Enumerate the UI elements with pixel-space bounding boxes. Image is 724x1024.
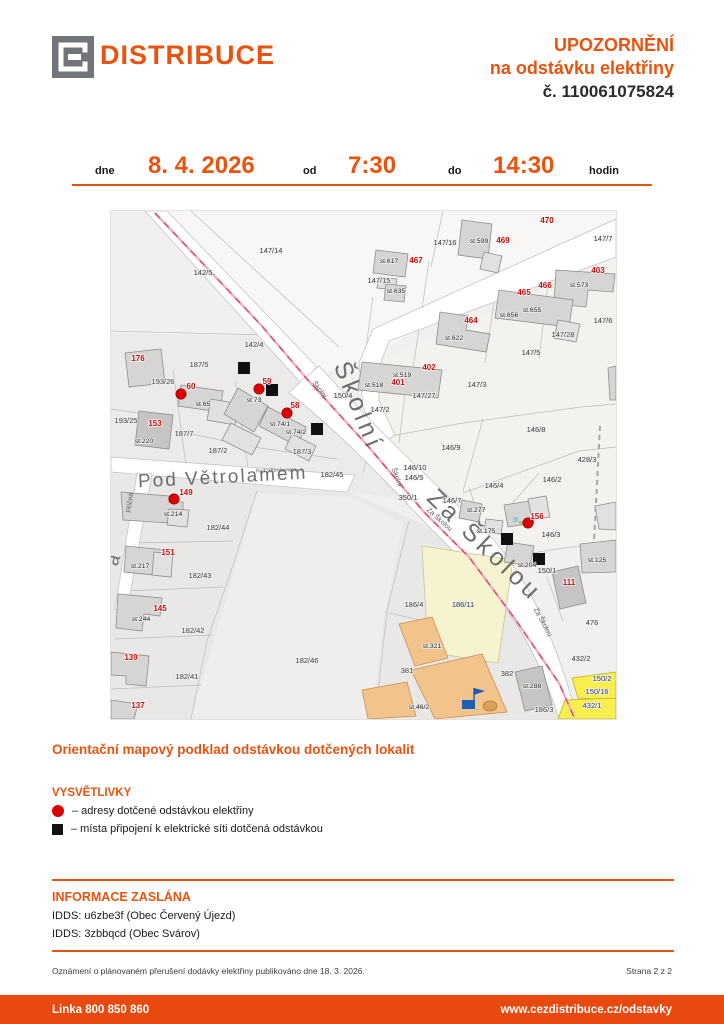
outage-map: ŠkolníZa ŠkolouPod VětrolamemáŠkolníŠkol… <box>110 210 617 720</box>
map-label: 182/42 <box>182 626 205 635</box>
map-label: 193/25 <box>115 416 138 425</box>
map-label: 146/9 <box>442 443 461 452</box>
idds-line: IDDS: u6zbe3f (Obec Červený Újezd) <box>52 910 235 922</box>
map-label: 182/43 <box>189 571 212 580</box>
map-label: st.74/1 <box>270 421 291 428</box>
divider <box>72 184 652 186</box>
map-label: 381 <box>401 666 414 675</box>
divider <box>52 950 674 952</box>
map-label: 187/7 <box>175 429 194 438</box>
map-label: 186/4 <box>405 600 424 609</box>
map-label: 147/27 <box>413 391 436 400</box>
map-label: st.635 <box>387 288 406 295</box>
affected-address-marker <box>176 389 186 399</box>
map-label: 186/11 <box>452 600 474 609</box>
map-label: 187/3 <box>293 447 312 456</box>
map-label: 403 <box>591 266 605 275</box>
cez-logo-mark <box>52 36 94 78</box>
legend-item-text: – adresy dotčené odstávkou elektřiny <box>72 805 254 817</box>
map-label: 465 <box>517 288 531 297</box>
map-label: 428/3 <box>578 455 597 464</box>
map-label: 145 <box>153 604 167 613</box>
legend-item-addresses: – adresy dotčené odstávkou elektřiny <box>52 805 254 817</box>
map-label: 146/4 <box>485 481 504 490</box>
from-time: 7:30 <box>348 152 396 180</box>
map-label: 146/8 <box>527 425 546 434</box>
map-label: st.65 <box>196 401 211 408</box>
red-dot-icon <box>52 805 64 817</box>
map-label: 182/46 <box>296 656 319 665</box>
brand-wordmark: DISTRIBUCE <box>100 40 275 71</box>
affected-address-marker <box>169 494 179 504</box>
idds-line: IDDS: 3zbbqcd (Obec Svárov) <box>52 928 200 940</box>
outage-map-svg: ŠkolníZa ŠkolouPod VětrolamemáŠkolníŠkol… <box>111 211 616 719</box>
map-label: st.321 <box>423 643 442 650</box>
legend-item-text: – místa připojení k elektrické síti dotč… <box>71 823 323 835</box>
map-label: 187/2 <box>209 446 228 455</box>
map-label: 466 <box>538 281 552 290</box>
map-label: 153 <box>148 419 162 428</box>
map-label: 147/5 <box>522 348 541 357</box>
map-label: 60 <box>187 382 196 391</box>
map-label: 470 <box>540 216 554 225</box>
map-label: 146/5 <box>405 473 424 482</box>
map-label: 142/4 <box>245 340 264 349</box>
unit-label: hodin <box>589 165 619 177</box>
map-label: 182/44 <box>207 523 230 532</box>
map-label: st.175 <box>477 528 496 535</box>
info-title: INFORMACE ZASLÁNA <box>52 890 191 904</box>
footer-bar: Linka 800 850 860 www.cezdistribuce.cz/o… <box>0 995 724 1024</box>
map-label: 147/7 <box>594 234 613 243</box>
map-label: 151 <box>161 548 175 557</box>
map-label: st.655 <box>523 307 542 314</box>
map-label: 146/3 <box>542 530 561 539</box>
map-label: 193/26 <box>152 377 175 386</box>
publication-note: Oznámení o plánovaném přerušení dodávky … <box>52 966 365 976</box>
page-number: Strana 2 z 2 <box>626 966 672 976</box>
map-label: 147/16 <box>434 238 457 247</box>
map-caption: Orientační mapový podklad odstávkou dotč… <box>52 742 414 757</box>
map-label: 147/15 <box>368 276 391 285</box>
map-label: st.617 <box>380 258 399 265</box>
date-label: dne <box>95 165 115 177</box>
map-label: st.214 <box>164 511 183 518</box>
map-label: st.518 <box>365 382 384 389</box>
map-label: 147/28 <box>552 330 575 339</box>
notice-title-line2: na odstávku elektřiny <box>490 57 674 80</box>
map-label: st.656 <box>500 312 519 319</box>
outage-date: 8. 4. 2026 <box>148 152 255 180</box>
legend-title: VYSVĚTLIVKY <box>52 787 131 799</box>
divider <box>52 879 674 881</box>
from-label: od <box>303 165 316 177</box>
map-label: 137 <box>131 701 145 710</box>
map-label: 139 <box>124 653 138 662</box>
map-label: 142/5 <box>194 268 213 277</box>
map-label: 149 <box>179 488 193 497</box>
map-label: 111 <box>563 578 576 587</box>
map-label: 464 <box>464 316 478 325</box>
notice-title: UPOZORNĚNÍ na odstávku elektřiny č. 1100… <box>490 34 674 103</box>
to-time: 14:30 <box>493 152 554 180</box>
map-label: st.73 <box>247 397 262 404</box>
legend-item-connections: – místa připojení k elektrické síti dotč… <box>52 823 323 835</box>
map-label: st.599 <box>470 238 489 245</box>
map-label: 432/1 <box>583 701 602 710</box>
map-label: st.74/2 <box>286 429 307 436</box>
map-label: 147/14 <box>260 246 283 255</box>
map-label: st.244 <box>132 616 151 623</box>
map-label: 467 <box>409 256 423 265</box>
map-label: 187/5 <box>190 360 209 369</box>
black-square-icon <box>52 824 63 835</box>
footer-phone: Linka 800 850 860 <box>52 1004 149 1016</box>
map-label: 150/4 <box>334 391 353 400</box>
connection-point-marker <box>311 423 323 435</box>
map-label: 182/45 <box>321 470 344 479</box>
footer-url: www.cezdistribuce.cz/odstavky <box>501 1004 673 1016</box>
map-label: 432/2 <box>572 654 591 663</box>
map-label: 146/2 <box>543 475 562 484</box>
map-label: st.622 <box>445 335 464 342</box>
map-label: 59 <box>263 377 272 386</box>
map-label: 146/7 <box>443 496 462 505</box>
map-label: st.220 <box>135 438 154 445</box>
page: { "header": { "brand": "DISTRIBUCE", "ti… <box>0 0 724 1024</box>
map-label: 382 <box>501 669 514 678</box>
map-label: st.125 <box>588 557 607 564</box>
schedule-row: dne 8. 4. 2026 od 7:30 do 14:30 hodin <box>72 144 652 182</box>
map-label: 58 <box>291 401 300 410</box>
map-label: 150/2 <box>593 674 612 683</box>
to-label: do <box>448 165 461 177</box>
map-label: st.204 <box>518 562 537 569</box>
map-label: 147/2 <box>371 405 390 414</box>
map-label: 156 <box>530 512 544 521</box>
map-label: 182/41 <box>176 672 199 681</box>
map-label: 350/1 <box>399 493 418 502</box>
map-label: st.573 <box>570 282 589 289</box>
map-label: 476 <box>586 618 599 627</box>
map-label: st.288 <box>523 683 542 690</box>
map-label: 147/3 <box>468 380 487 389</box>
map-label: st.277 <box>467 507 486 514</box>
connection-point-marker <box>238 362 250 374</box>
map-label: 469 <box>496 236 510 245</box>
notice-title-line1: UPOZORNĚNÍ <box>490 34 674 57</box>
map-label: 176 <box>131 354 145 363</box>
map-label: 150/16 <box>586 687 609 696</box>
map-label: st.46/2 <box>409 704 430 711</box>
notice-number: č. 110061075824 <box>490 80 674 103</box>
map-label: 150/1 <box>538 566 557 575</box>
map-label: 401 <box>391 378 405 387</box>
map-label: 147/6 <box>594 316 613 325</box>
map-label: 402 <box>422 363 436 372</box>
map-label: st.217 <box>131 563 150 570</box>
map-label: 186/3 <box>535 705 554 714</box>
map-label: 146/10 <box>404 463 427 472</box>
